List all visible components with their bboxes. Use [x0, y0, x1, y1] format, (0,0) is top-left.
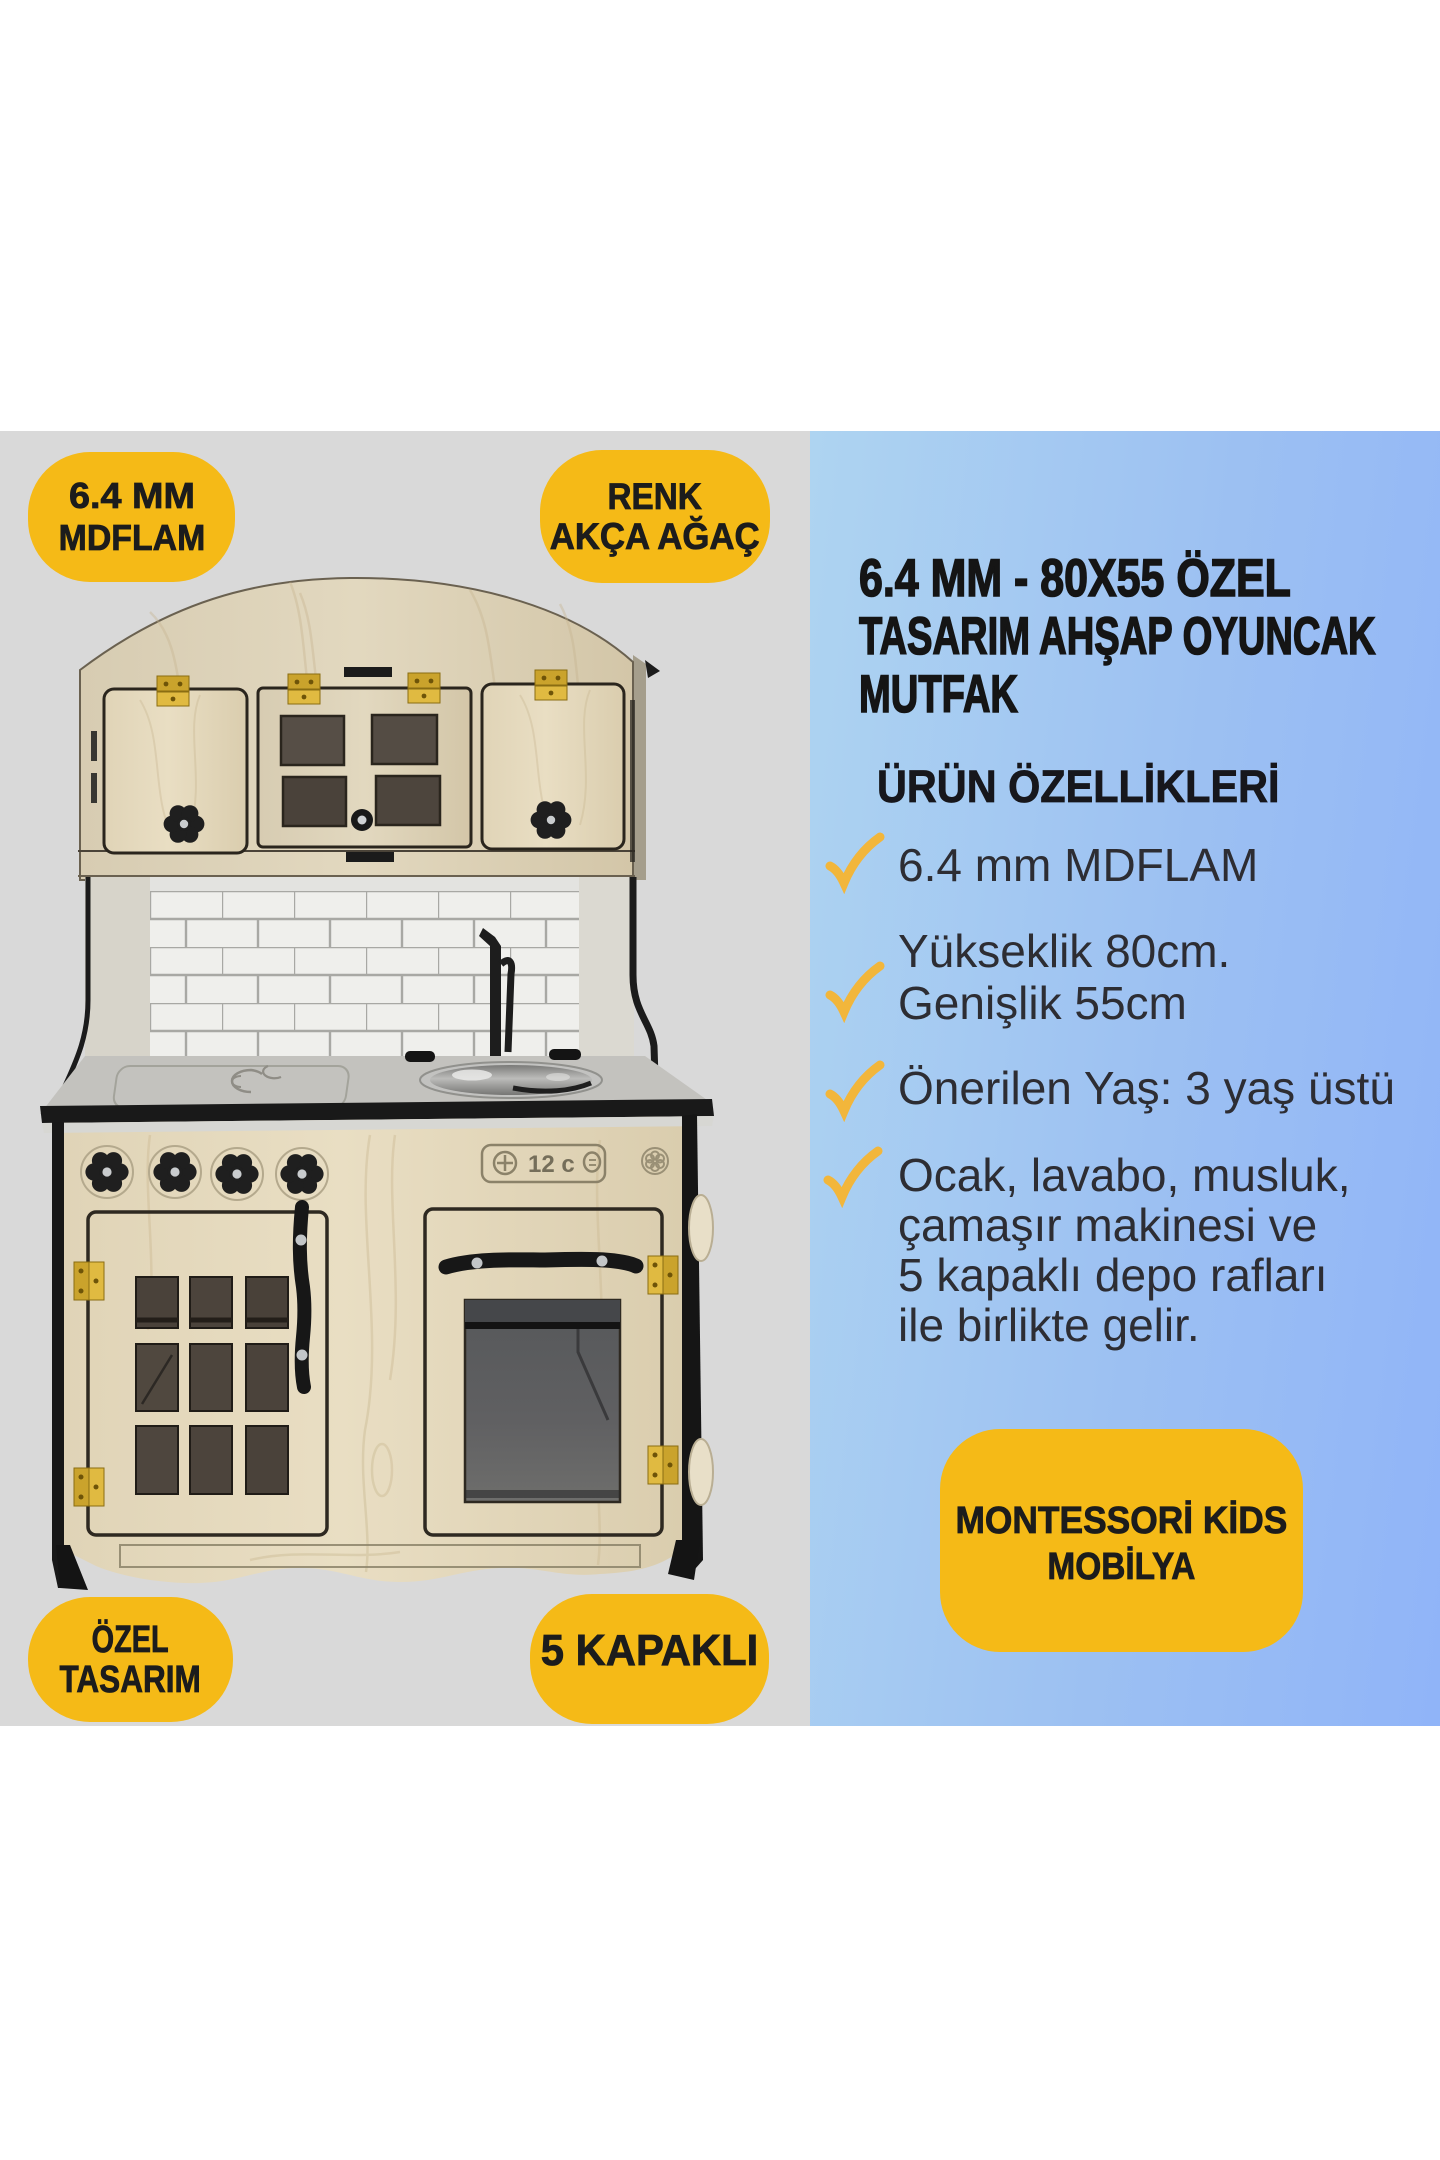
svg-text:12 c: 12 c: [528, 1151, 575, 1178]
